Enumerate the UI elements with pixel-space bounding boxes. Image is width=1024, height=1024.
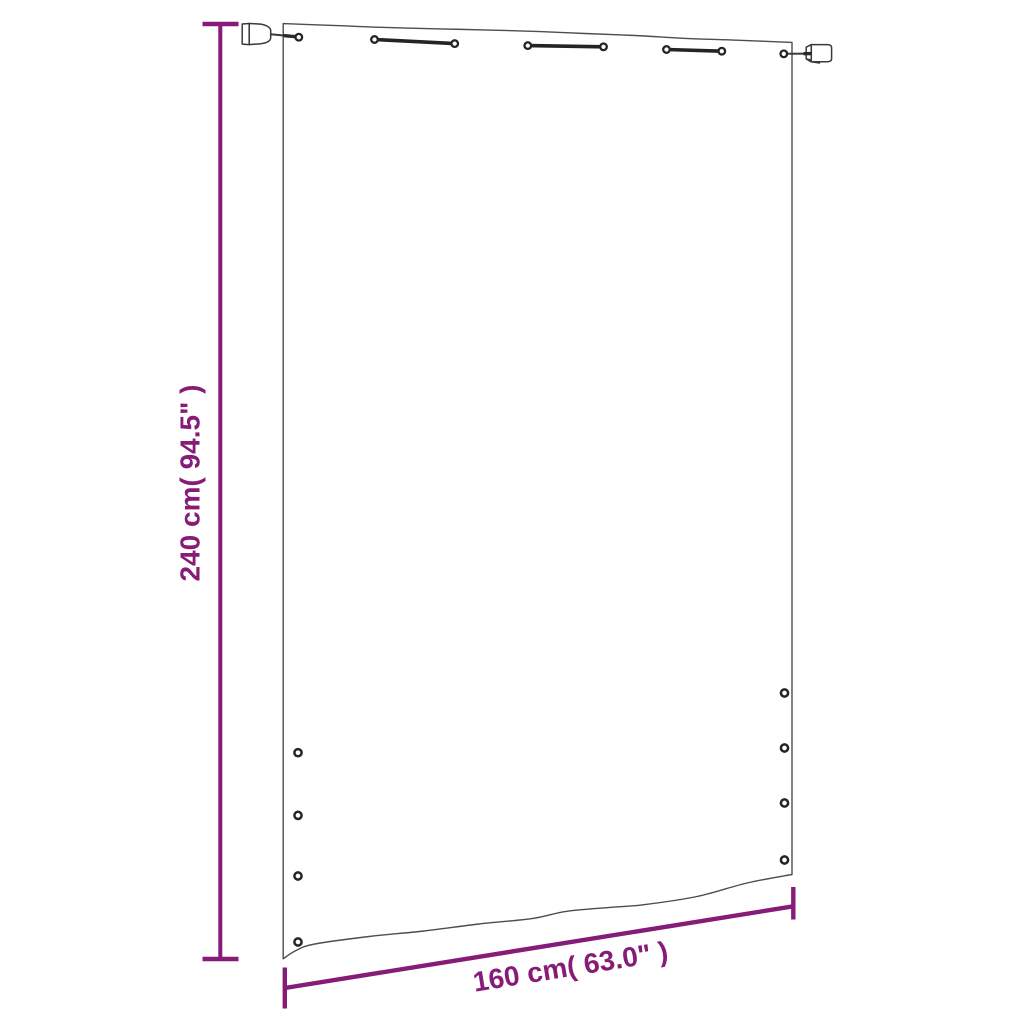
- svg-text:240 cm( 94.5" ): 240 cm( 94.5" ): [175, 385, 206, 582]
- svg-text:160 cm( 63.0" ): 160 cm( 63.0" ): [471, 936, 670, 998]
